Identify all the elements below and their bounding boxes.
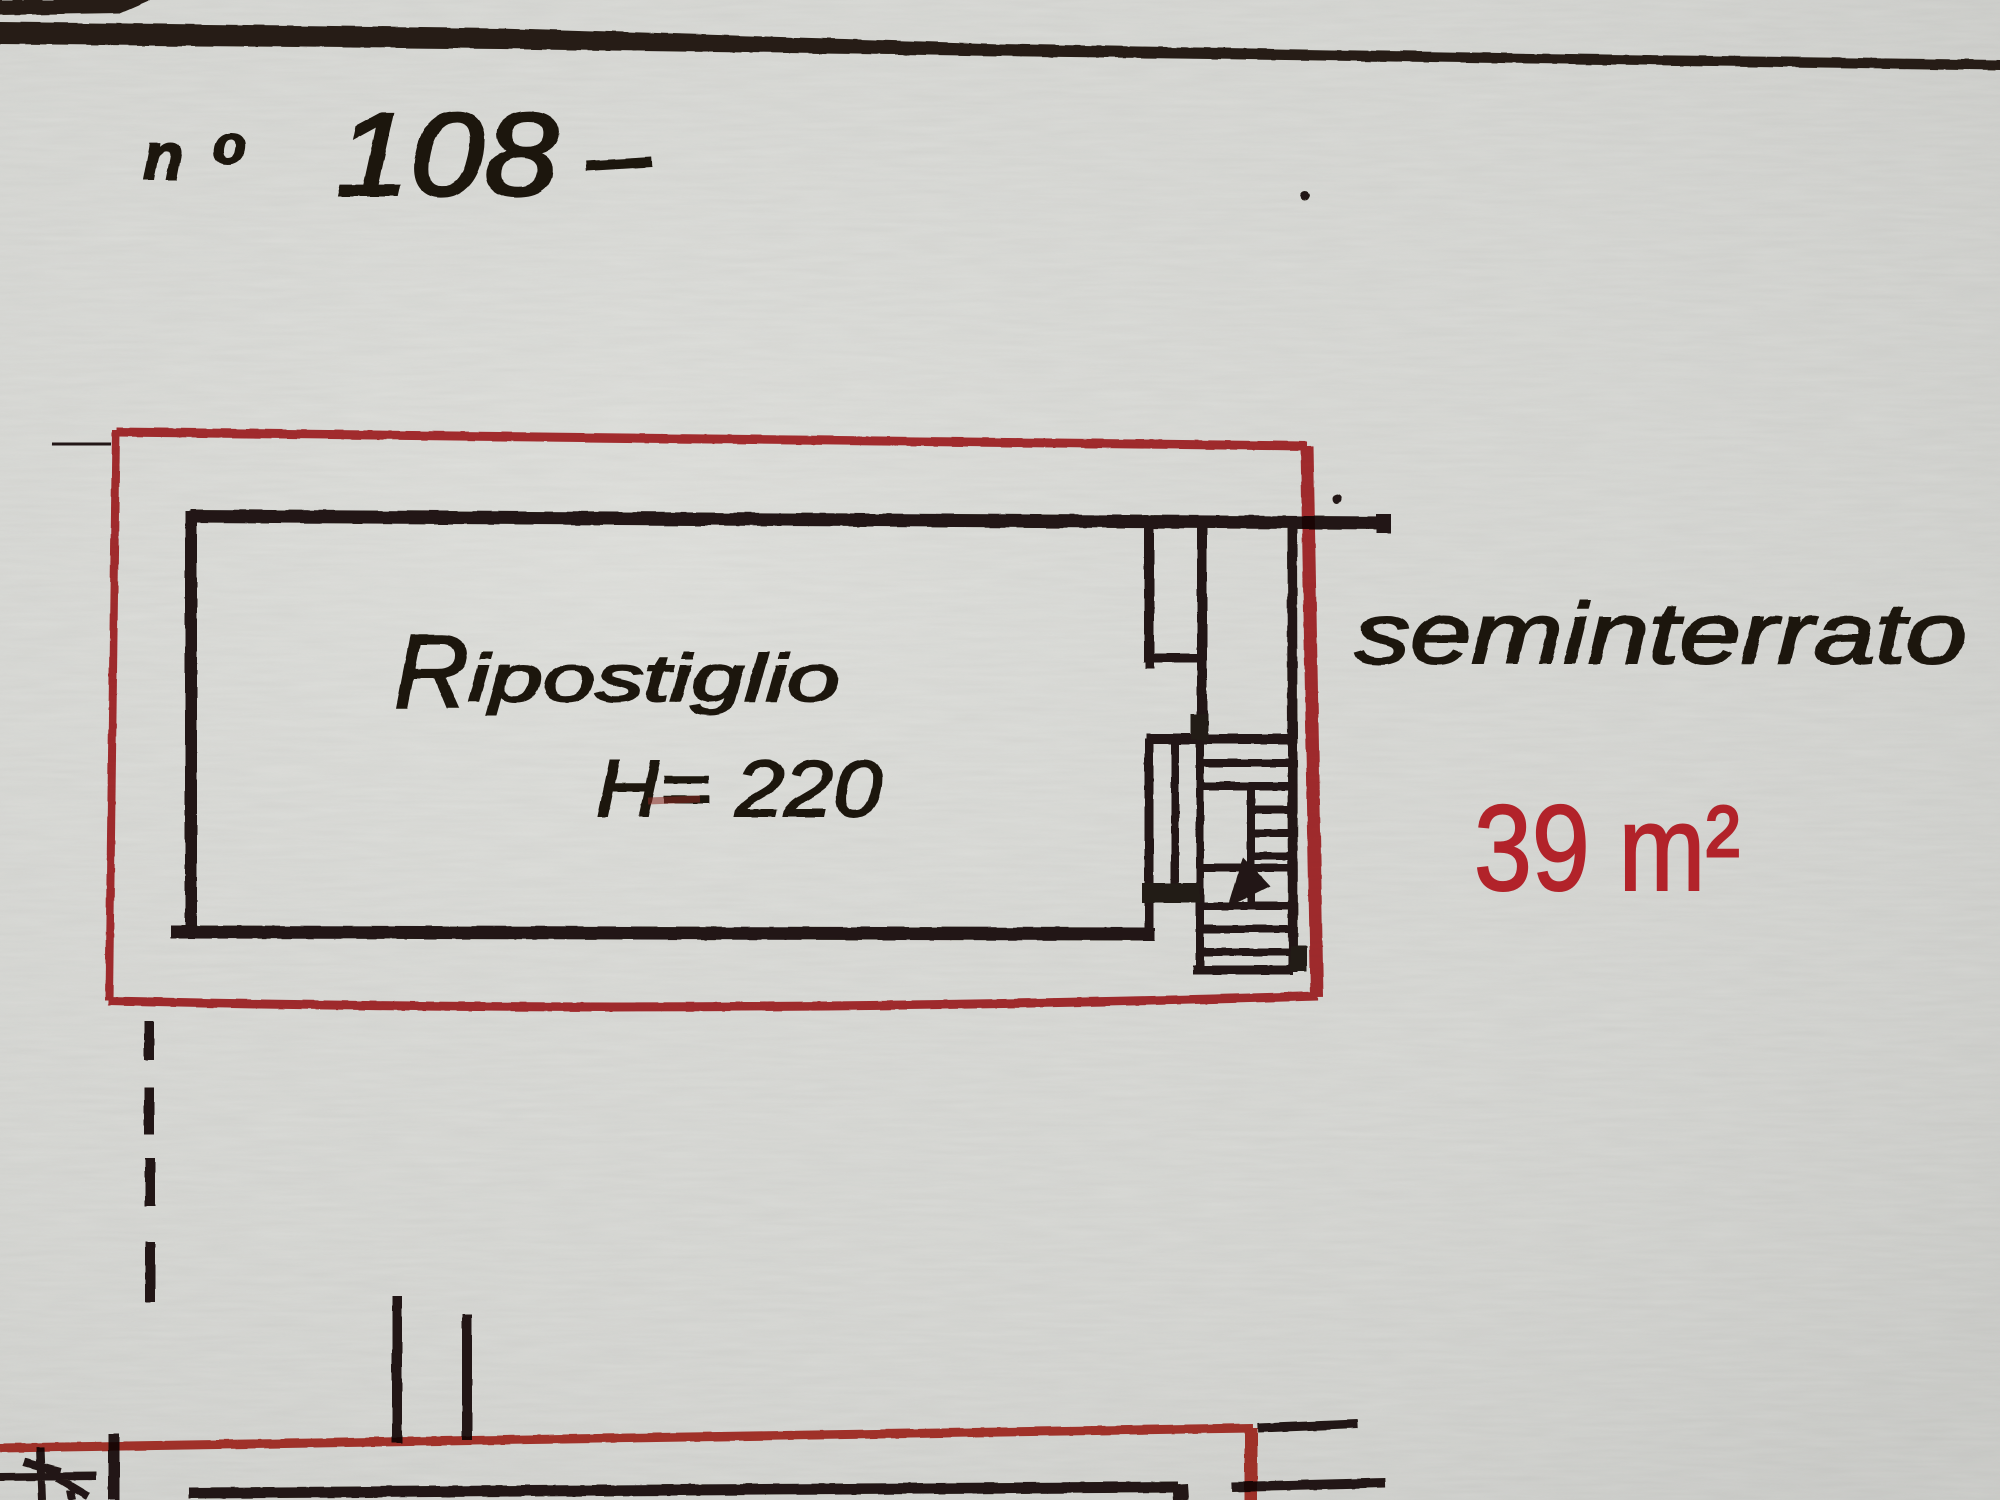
svg-text:seminterrato: seminterrato [1355, 586, 1967, 682]
svg-text:108: 108 [336, 89, 558, 221]
svg-text:H= 220: H= 220 [596, 744, 882, 833]
svg-text:R: R [394, 614, 469, 730]
svg-text:39 m²: 39 m² [1474, 780, 1740, 916]
svg-text:ipostiglio: ipostiglio [468, 641, 840, 715]
svg-text:n: n [143, 119, 183, 193]
svg-text:o: o [213, 115, 246, 175]
